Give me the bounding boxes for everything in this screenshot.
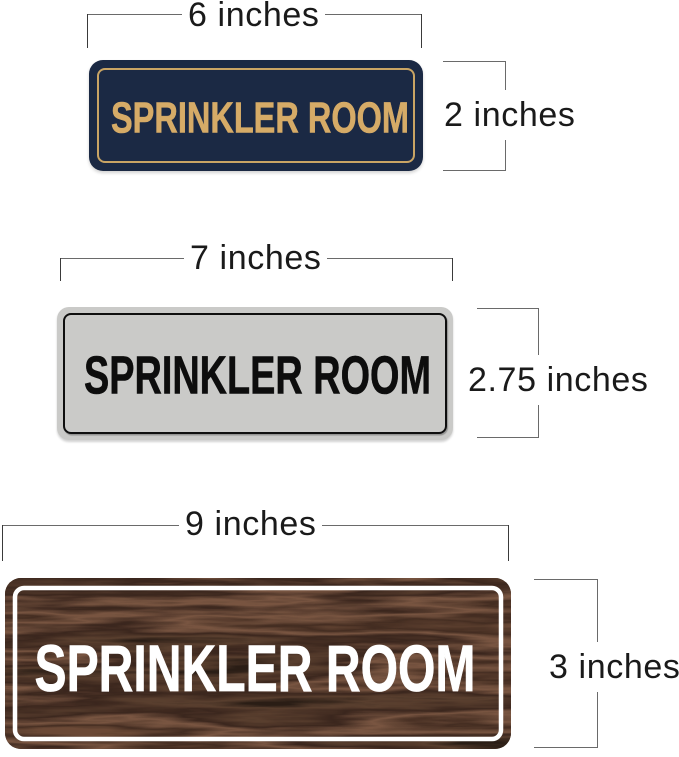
svg-text:SPRINKLER ROOM: SPRINKLER ROOM — [111, 94, 409, 143]
svg-text:SPRINKLER ROOM: SPRINKLER ROOM — [35, 631, 476, 705]
svg-text:SPRINKLER ROOM: SPRINKLER ROOM — [84, 346, 431, 405]
